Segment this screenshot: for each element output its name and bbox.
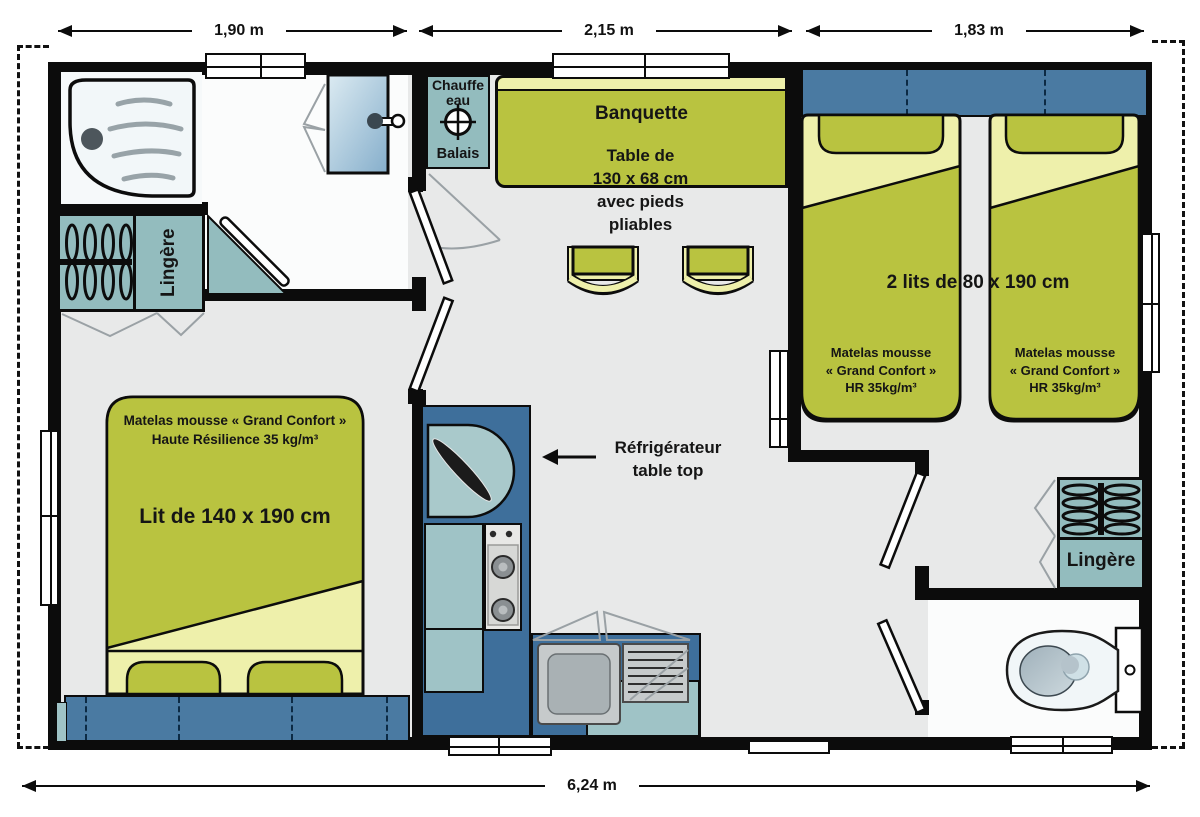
headboard-dash [85,697,87,740]
window-kitchen-bottom [448,736,552,756]
window-master-left [40,430,59,606]
master-headboard [64,695,410,742]
twin-beds-label: 2 lits de 80 x 190 cm [803,272,1153,294]
twin-mattress-note-right: Matelas mousse « Grand Confort » HR 35kg… [990,344,1140,397]
dimension-label-top-left: 1,90 m [192,20,286,42]
door-hinge-block [408,177,423,192]
kitchen-counter [424,523,484,693]
headboard-side-panel [56,702,67,742]
broom-label: Balais [426,146,490,162]
headboard-dash [386,697,388,740]
water-heater-label: Chauffe eau [426,78,490,107]
table-label: Table de 130 x 68 cm avec pieds pliables [544,145,737,237]
chassis-dashed-bottom-right [1152,746,1185,749]
window-toilet-bottom [1010,736,1113,754]
bench-backrest [498,78,785,91]
fridge-label: Réfrigérateur table top [588,437,748,483]
wardrobe-right [1057,477,1145,590]
window-bathroom-top [205,53,306,79]
bench-label: Banquette [495,103,788,125]
dimension-label-top-right: 1,83 m [932,20,1026,42]
floor-plan: 1,90 m 2,15 m 1,83 m 6,24 m Chauffe eau … [0,0,1200,817]
door-hinge-block [915,700,929,715]
wall-twin-left [788,62,801,462]
window-twin-right [1141,233,1160,373]
dimension-label-top-center: 2,15 m [562,20,656,42]
dimension-label-bottom: 6,24 m [545,775,639,797]
wall-closet-cap [412,277,426,311]
wall-twin-bottom [788,450,928,462]
window-living-bottom [748,740,830,754]
twin-mattress-note-left: Matelas mousse « Grand Confort » HR 35kg… [806,344,956,397]
headboard-dash [178,697,180,740]
counter-divider [426,628,482,630]
headboard-dash [1044,70,1046,115]
wall-hall-top [412,62,426,191]
headboard-dash [906,70,908,115]
master-mattress-note: Matelas mousse « Grand Confort » Haute R… [110,412,360,450]
chassis-dashed-top-left [17,45,49,48]
chassis-dashed-top-right [1152,40,1185,43]
master-bed-label: Lit de 140 x 190 cm [110,505,360,529]
headboard-dash [291,697,293,740]
door-hinge-block [408,389,423,404]
chassis-dashed-left [17,45,20,748]
stove-unit [484,523,522,631]
twin-headboard [801,68,1148,117]
wall-closet [205,289,426,301]
wall-twin-cap [915,450,929,476]
chassis-dashed-right [1182,40,1185,748]
wardrobe-divider [1060,537,1142,540]
wardrobe-right-label: Lingère [1057,550,1145,572]
window-living-top [552,53,730,79]
kitchen-counter-corner [586,680,700,737]
toilet-room-floor [928,600,1139,737]
chassis-dashed-bottom-left [17,746,49,749]
wardrobe-left-label: Lingère [134,213,204,312]
window-twin-interior [769,350,789,448]
